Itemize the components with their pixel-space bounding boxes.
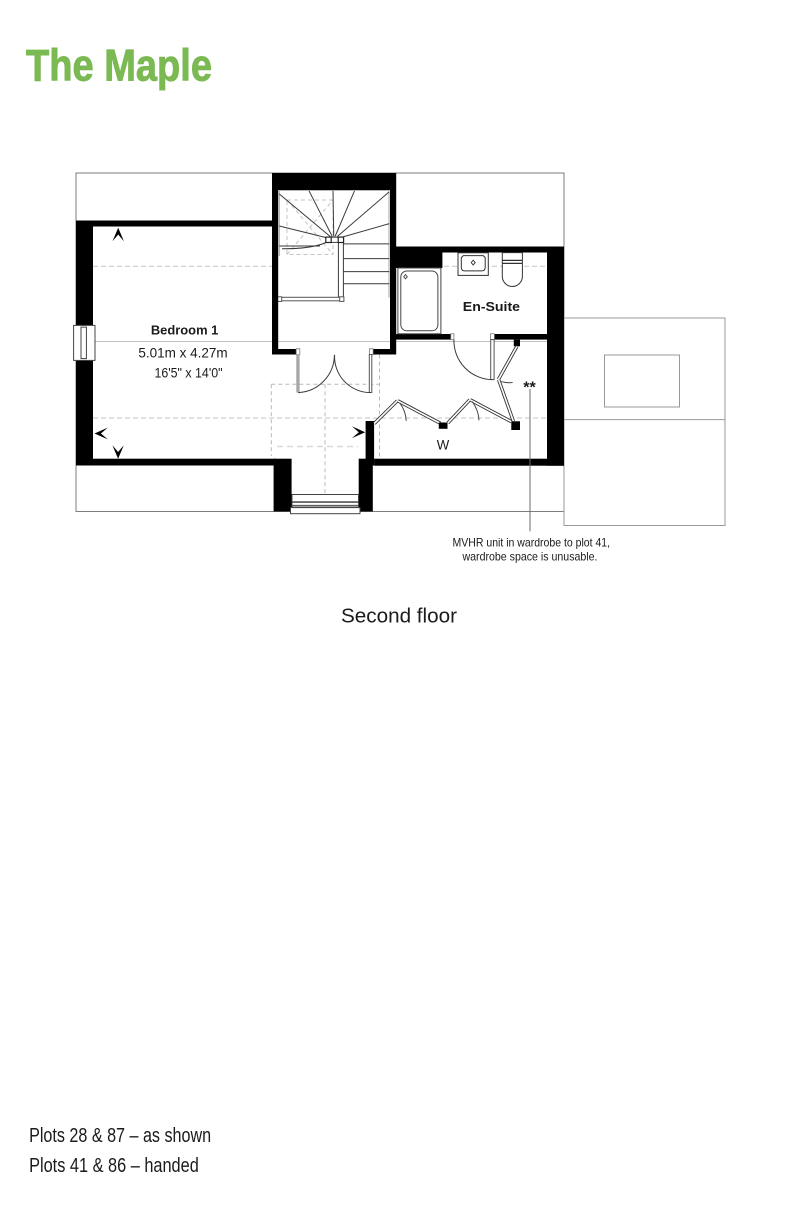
svg-text:Second floor: Second floor	[341, 606, 457, 628]
svg-text:16'5" x 14'0": 16'5" x 14'0"	[155, 365, 223, 380]
svg-text:MVHR unit in wardrobe to plot: MVHR unit in wardrobe to plot 41,	[453, 535, 611, 549]
svg-text:The Maple: The Maple	[26, 42, 212, 91]
svg-text:wardrobe space is unusable.: wardrobe space is unusable.	[462, 550, 598, 564]
svg-text:Plots 28 & 87 – as shown: Plots 28 & 87 – as shown	[29, 1125, 211, 1147]
svg-text:En-Suite: En-Suite	[463, 299, 520, 314]
svg-text:Bedroom 1: Bedroom 1	[151, 323, 219, 338]
svg-text:5.01m x 4.27m: 5.01m x 4.27m	[138, 346, 227, 361]
svg-text:W: W	[437, 437, 450, 453]
svg-text:Plots 41 & 86 – handed: Plots 41 & 86 – handed	[29, 1155, 199, 1177]
